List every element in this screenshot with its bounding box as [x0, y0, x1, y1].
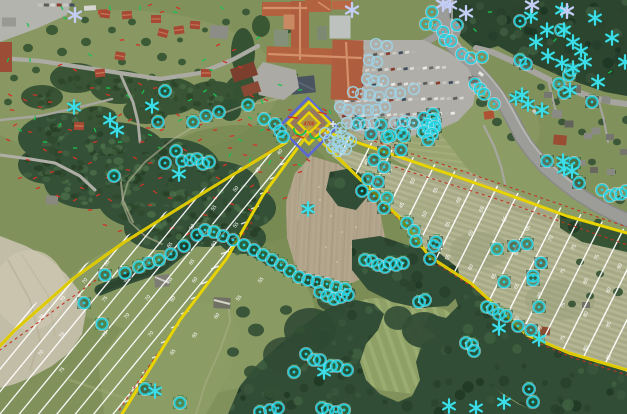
- svg-text:4700: 4700: [303, 122, 314, 128]
